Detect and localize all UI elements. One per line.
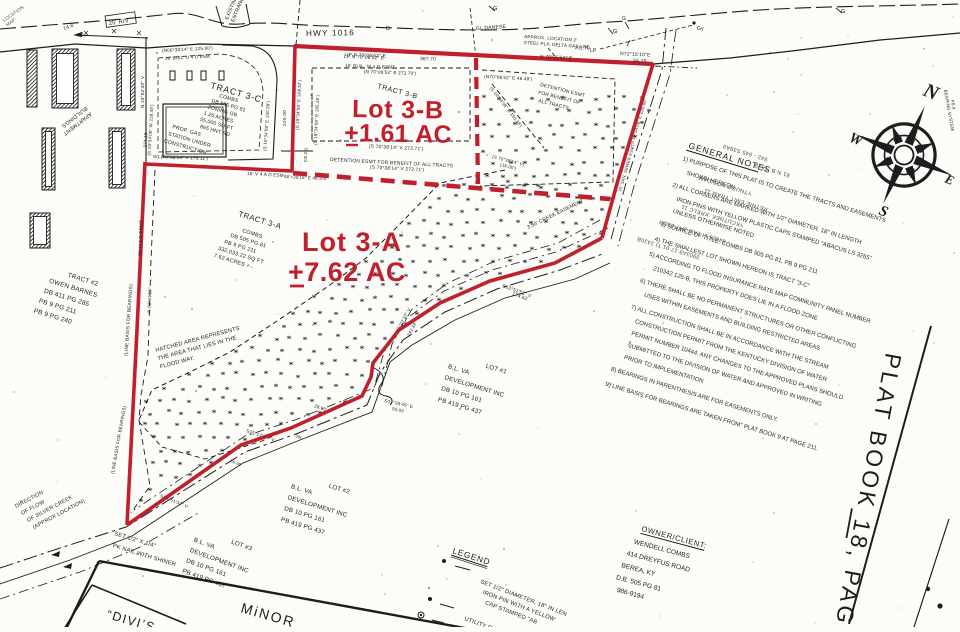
svg-text:211.70: 211.70	[575, 45, 590, 51]
svg-text:274.18: 274.18	[143, 132, 149, 148]
svg-text:G: G	[493, 6, 497, 12]
svg-text:387.70: 387.70	[420, 56, 436, 63]
svg-text:+1.61 AC: +1.61 AC	[344, 119, 452, 149]
svg-text:D: D	[386, 26, 390, 32]
svg-text:220.00: 220.00	[282, 110, 288, 126]
svg-text:(00.05): (00.05)	[303, 147, 309, 162]
svg-text:G: G	[841, 9, 845, 15]
svg-text:+7.62 AC: +7.62 AC	[288, 257, 406, 287]
svg-text:Lot 3-A: Lot 3-A	[302, 227, 402, 257]
svg-text:56.75: 56.75	[633, 58, 647, 65]
svg-text:N 19°52'30" V: N 19°52'30" V	[140, 75, 146, 108]
svg-text:G: G	[613, 29, 617, 35]
svg-text:N 02°41'16": N 02°41'16"	[147, 287, 153, 313]
svg-text:LP: LP	[590, 48, 597, 54]
svg-text:Gy: Gy	[697, 26, 704, 32]
svg-text:G: G	[622, 16, 626, 22]
svg-text:HWY 1016: HWY 1016	[306, 28, 355, 38]
